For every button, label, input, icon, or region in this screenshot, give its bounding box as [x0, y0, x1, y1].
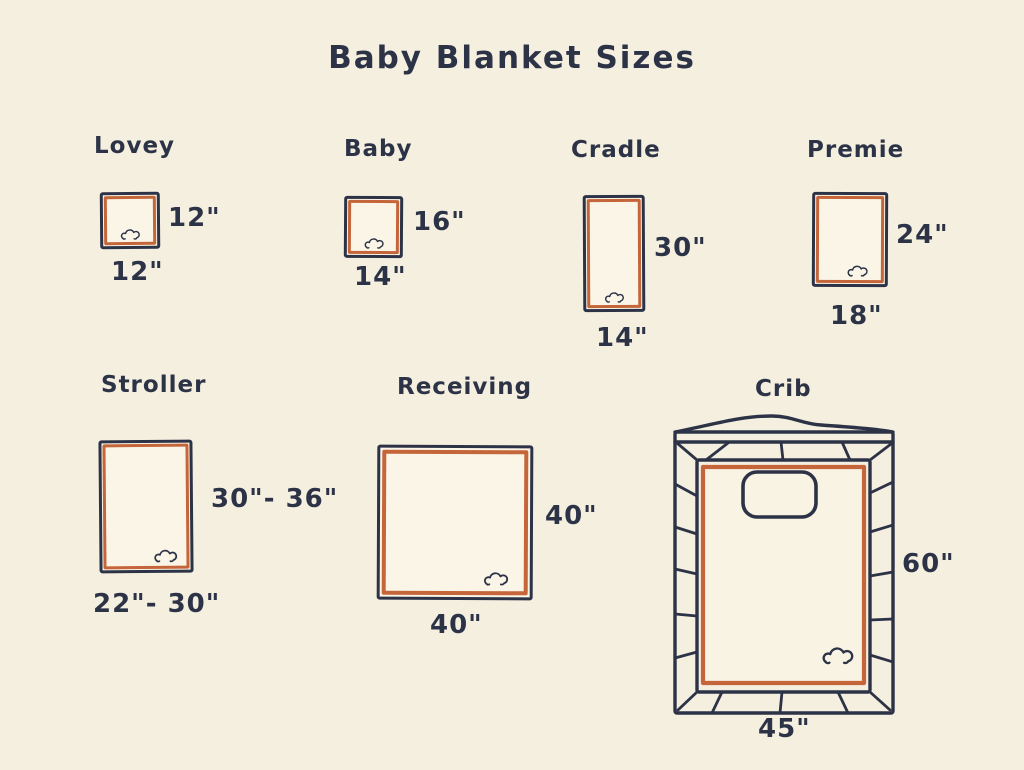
blanket-stroller-height: 30"- 36": [211, 484, 338, 514]
blanket-premie-swatch: [812, 192, 888, 287]
scallop-icon: [846, 262, 869, 278]
crib-pillow: [743, 472, 816, 517]
scallop-icon: [482, 568, 510, 587]
blanket-stroller-swatch: [98, 440, 193, 574]
page-title: Baby Blanket Sizes: [0, 40, 1024, 76]
blanket-lovey-height: 12": [168, 203, 221, 233]
blanket-stroller-trim: [102, 444, 189, 570]
blanket-cradle-height: 30": [654, 233, 707, 263]
blanket-stroller-width: 22"- 30": [93, 589, 220, 619]
blanket-crib-height: 60": [902, 549, 955, 579]
infographic-canvas: Baby Blanket Sizes Lovey 12" 12" Baby 16…: [0, 0, 1024, 770]
blanket-premie-height: 24": [896, 220, 949, 250]
blanket-premie-trim: [816, 196, 884, 283]
blanket-receiving-height: 40": [545, 501, 598, 531]
crib-illustration: [660, 406, 910, 724]
blanket-lovey-swatch: [100, 192, 160, 250]
blanket-cradle-swatch: [583, 195, 646, 312]
scallop-icon: [603, 289, 625, 304]
blanket-receiving-width: 40": [430, 610, 483, 640]
blanket-baby-width: 14": [354, 262, 407, 292]
blanket-premie-width: 18": [830, 301, 883, 331]
blanket-cradle-trim: [587, 199, 642, 308]
blanket-receiving-trim: [382, 450, 529, 596]
scallop-icon: [119, 226, 141, 241]
scallop-icon: [362, 235, 384, 250]
blanket-crib-label: Crib: [755, 376, 812, 402]
blanket-receiving-swatch: [377, 445, 534, 601]
blanket-baby-height: 16": [413, 207, 466, 237]
blanket-lovey-width: 12": [111, 257, 164, 287]
crib-headboard: [675, 416, 893, 432]
blanket-cradle-width: 14": [596, 323, 649, 353]
blanket-cradle-label: Cradle: [571, 137, 661, 163]
blanket-stroller-label: Stroller: [101, 372, 206, 398]
scallop-icon: [152, 546, 178, 564]
blanket-crib-width: 45": [758, 714, 811, 744]
blanket-baby-trim: [348, 200, 399, 254]
blanket-receiving-label: Receiving: [397, 374, 532, 400]
blanket-lovey-trim: [104, 196, 156, 245]
blanket-premie-label: Premie: [807, 137, 904, 163]
blanket-baby-label: Baby: [344, 136, 413, 162]
blanket-baby-swatch: [344, 196, 403, 258]
blanket-lovey-label: Lovey: [94, 133, 175, 159]
